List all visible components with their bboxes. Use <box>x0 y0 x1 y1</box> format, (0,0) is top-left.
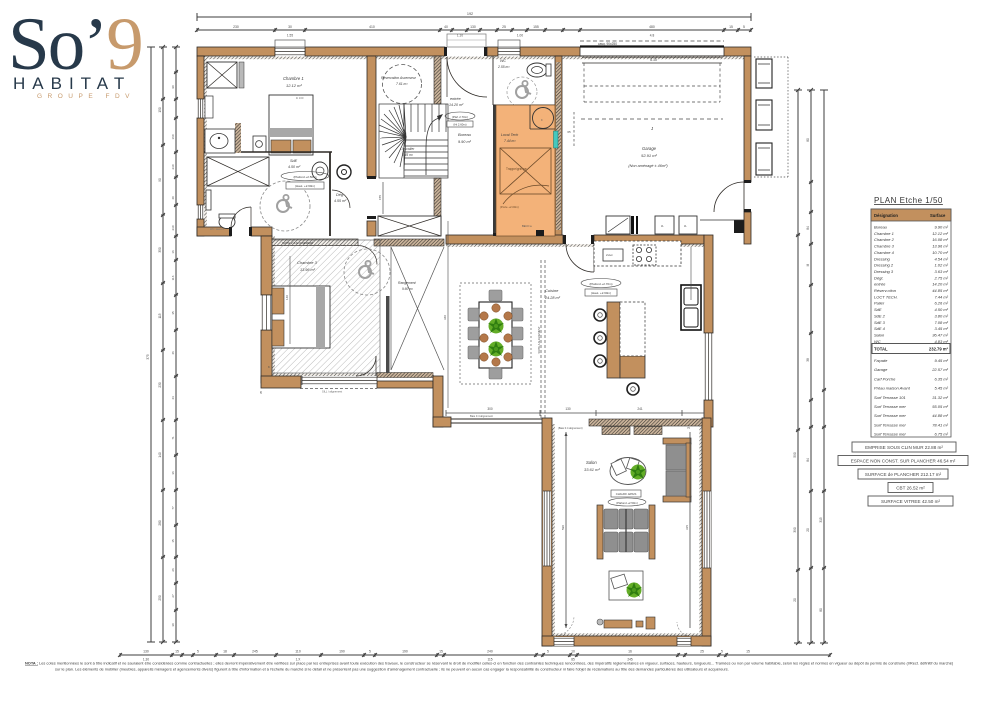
svg-text:20: 20 <box>793 598 797 602</box>
svg-text:350: 350 <box>158 247 162 253</box>
svg-text:130: 130 <box>470 25 476 29</box>
svg-text:c: c <box>541 117 543 122</box>
svg-text:K: K <box>268 365 270 369</box>
svg-text:590: 590 <box>793 452 797 458</box>
svg-text:Dressing: Dressing <box>874 256 891 261</box>
svg-text:90: 90 <box>158 178 162 182</box>
svg-text:4.54 m²: 4.54 m² <box>934 256 948 261</box>
svg-text:Salon: Salon <box>874 332 885 337</box>
svg-text:155: 155 <box>533 25 539 29</box>
svg-text:10.70 m²: 10.70 m² <box>932 250 948 255</box>
svg-text:Carf Porche: Carf Porche <box>874 376 896 381</box>
svg-text:HABITAT: HABITAT <box>13 74 131 93</box>
svg-text:TOTAL: TOTAL <box>874 347 888 352</box>
svg-text:15: 15 <box>729 25 733 29</box>
svg-text:250: 250 <box>158 595 162 601</box>
svg-text:9.90 m²: 9.90 m² <box>458 140 472 144</box>
svg-text:Chambre 3: Chambre 3 <box>874 244 895 249</box>
svg-text:5: 5 <box>547 650 549 654</box>
svg-text:5: 5 <box>721 650 723 654</box>
svg-text:230: 230 <box>233 25 239 29</box>
svg-text:Façade: Façade <box>874 358 888 363</box>
svg-text:150: 150 <box>158 107 162 113</box>
svg-text:7.08 m²: 7.08 m² <box>934 320 948 325</box>
svg-text:Dressing 3: Dressing 3 <box>874 269 894 274</box>
svg-text:SdE: SdE <box>290 159 298 163</box>
svg-text:190: 190 <box>402 650 408 654</box>
svg-text:Réserv.ction: Réserv.ction <box>874 288 897 293</box>
svg-text:Surf Terrasse 101: Surf Terrasse 101 <box>874 395 906 400</box>
svg-text:Surf Terrasse mer: Surf Terrasse mer <box>874 404 907 409</box>
svg-text:55.05 m²: 55.05 m² <box>932 404 948 409</box>
svg-text:13.96 m²: 13.96 m² <box>300 268 316 272</box>
svg-text:10: 10 <box>571 650 575 654</box>
svg-text:3.63 m²: 3.63 m² <box>934 269 948 274</box>
svg-text:115: 115 <box>158 313 162 318</box>
svg-text:6.35 m²: 6.35 m² <box>934 376 948 381</box>
svg-text:71: 71 <box>171 436 175 440</box>
svg-text:sur le plan. Les éléments de m: sur le plan. Les éléments de mobilier (m… <box>55 667 729 672</box>
svg-text:3.45 m²: 3.45 m² <box>934 326 948 331</box>
svg-text:Rangement: Rangement <box>398 281 417 285</box>
svg-text:entrée: entrée <box>874 282 886 287</box>
svg-text:SILL / alignement: SILL / alignement <box>322 390 342 394</box>
svg-text:24.28 m²: 24.28 m² <box>544 296 561 300</box>
svg-text:SdE 2: SdE 2 <box>874 313 886 318</box>
svg-text:40: 40 <box>171 196 175 200</box>
svg-text:46: 46 <box>171 351 175 355</box>
svg-text:52.91 m²: 52.91 m² <box>641 153 657 158</box>
svg-text:LOCT TECH.: LOCT TECH. <box>874 294 898 299</box>
svg-text:Garage: Garage <box>642 146 657 151</box>
svg-text:Réservation Ascenseur: Réservation Ascenseur <box>381 76 417 80</box>
svg-text:190: 190 <box>339 650 345 654</box>
svg-text:2.75 m²: 2.75 m² <box>933 275 948 280</box>
svg-text:241: 241 <box>637 407 643 411</box>
svg-text:3.80 m²: 3.80 m² <box>934 313 948 318</box>
svg-text:WC: WC <box>500 59 506 63</box>
svg-text:160: 160 <box>171 134 175 139</box>
svg-text:36: 36 <box>171 471 175 475</box>
svg-text:116: 116 <box>171 275 175 280</box>
svg-text:(Plafond +2.70m): (Plafond +2.70m) <box>589 282 612 286</box>
svg-text:4.55 m²: 4.55 m² <box>334 199 347 203</box>
svg-text:77: 77 <box>171 506 175 510</box>
svg-text:1.00: 1.00 <box>517 34 523 38</box>
svg-text:a.: a. <box>661 223 664 228</box>
svg-text:5: 5 <box>197 650 199 654</box>
svg-text:Surf Terrasse mer: Surf Terrasse mer <box>874 422 907 427</box>
svg-text:Désignation: Désignation <box>874 213 898 218</box>
svg-text:315: 315 <box>819 517 823 523</box>
svg-text:230: 230 <box>158 382 162 388</box>
svg-text:232.79 m²: 232.79 m² <box>929 347 949 352</box>
svg-text:Trappe/grimpe: Trappe/grimpe <box>506 167 527 171</box>
svg-text:12.12 m²: 12.12 m² <box>286 83 302 88</box>
svg-text:2.55 m²: 2.55 m² <box>497 65 510 69</box>
svg-text:Chambre 4: Chambre 4 <box>874 250 895 255</box>
svg-text:27: 27 <box>171 594 175 598</box>
svg-text:(Ht 2.60m): (Ht 2.60m) <box>453 123 466 127</box>
svg-text:EMPRISE SOUS CLIN MUR 22.88 m: EMPRISE SOUS CLIN MUR 22.88 m² <box>865 445 943 450</box>
svg-text:J: J <box>651 126 653 131</box>
svg-text:22.57 m²: 22.57 m² <box>931 367 948 372</box>
svg-text:Garage: Garage <box>874 367 888 372</box>
svg-text:110: 110 <box>295 650 301 654</box>
svg-text:140: 140 <box>158 452 162 458</box>
svg-text:30: 30 <box>288 25 292 29</box>
svg-text:375: 375 <box>146 354 150 360</box>
svg-text:340: 340 <box>443 315 447 320</box>
svg-text:Surface: Surface <box>930 213 946 218</box>
svg-text:16.08 m²: 16.08 m² <box>932 237 948 242</box>
svg-text:Dressing 2: Dressing 2 <box>874 263 894 268</box>
svg-text:44.88 m²: 44.88 m² <box>932 413 948 418</box>
svg-text:CBT 26.52 m²: CBT 26.52 m² <box>896 486 925 491</box>
svg-text:44: 44 <box>171 396 175 400</box>
svg-text:9.60 m²: 9.60 m² <box>402 287 414 291</box>
svg-text:15: 15 <box>171 539 175 543</box>
svg-text:35: 35 <box>259 390 263 394</box>
svg-text:590: 590 <box>561 525 565 530</box>
svg-text:1.10: 1.10 <box>457 34 463 38</box>
svg-text:15: 15 <box>439 650 443 654</box>
svg-text:WC: lave-m.: WC: lave-m. <box>210 227 225 231</box>
svg-text:Dégt.: Dégt. <box>874 275 884 280</box>
svg-text:WC: WC <box>874 339 881 344</box>
svg-text:9.45 m²: 9.45 m² <box>934 358 948 363</box>
svg-text:16: 16 <box>628 650 632 654</box>
svg-text:(Porte +2.00m): (Porte +2.00m) <box>500 205 519 209</box>
svg-text:9.90 m²: 9.90 m² <box>934 225 948 230</box>
svg-text:Chambre 2: Chambre 2 <box>874 237 895 242</box>
svg-text:Chambre 1: Chambre 1 <box>874 231 894 236</box>
svg-text:entrée: entrée <box>450 97 461 101</box>
svg-text:CHAUFF. EPAIS: CHAUFF. EPAIS <box>616 492 637 496</box>
svg-text:13.96 m²: 13.96 m² <box>932 244 948 249</box>
svg-text:15: 15 <box>175 650 179 654</box>
svg-text:NOTA : Les cotes mentionnées l: NOTA : Les cotes mentionnées le sont à t… <box>25 661 954 666</box>
svg-text:évier: évier <box>606 253 614 257</box>
svg-text:(Non aménagé ± 46m²): (Non aménagé ± 46m²) <box>628 164 668 168</box>
svg-text:1.02 m²: 1.02 m² <box>934 263 948 268</box>
svg-text:4.50 m²: 4.50 m² <box>934 307 948 312</box>
svg-text:25: 25 <box>700 650 704 654</box>
svg-text:230: 230 <box>171 225 175 230</box>
svg-text:casq. 90x250: casq. 90x250 <box>598 42 617 46</box>
svg-text:36.47 m²: 36.47 m² <box>932 332 948 337</box>
svg-text:26: 26 <box>171 568 175 572</box>
svg-text:78.41 m²: 78.41 m² <box>932 422 948 427</box>
svg-text:GROUPE FDV: GROUPE FDV <box>37 93 135 100</box>
svg-text:80: 80 <box>806 138 810 142</box>
svg-text:lit 160: lit 160 <box>296 96 304 100</box>
svg-text:7.61 m²: 7.61 m² <box>396 82 408 86</box>
svg-text:390: 390 <box>793 527 797 533</box>
svg-text:80: 80 <box>819 608 823 612</box>
svg-text:90: 90 <box>171 85 175 89</box>
svg-text:SdE 3: SdE 3 <box>874 320 886 325</box>
svg-text:Salon: Salon <box>586 460 597 465</box>
svg-text:1.55: 1.55 <box>287 34 293 38</box>
svg-text:6.26 m²: 6.26 m² <box>934 301 948 306</box>
svg-text:5: 5 <box>369 650 371 654</box>
svg-text:a.: a. <box>684 223 687 228</box>
svg-text:5.10: 5.10 <box>650 58 657 62</box>
svg-text:4.8: 4.8 <box>650 34 655 38</box>
svg-text:65: 65 <box>567 130 571 134</box>
svg-text:31.32 m²: 31.32 m² <box>932 395 948 400</box>
svg-text:480: 480 <box>649 25 655 29</box>
svg-text:SUITE A ALIGNEMENT: SUITE A ALIGNEMENT <box>537 326 541 354</box>
svg-text:SUITE 2 A ALIGNEMENT: SUITE 2 A ALIGNEMENT <box>282 241 314 245</box>
svg-text:84: 84 <box>806 226 810 230</box>
svg-text:44.85 m²: 44.85 m² <box>932 288 948 293</box>
svg-text:280: 280 <box>158 520 162 526</box>
svg-text:7.44 m²: 7.44 m² <box>504 139 516 143</box>
svg-text:33.61 m²: 33.61 m² <box>584 467 600 472</box>
svg-text:140: 140 <box>285 295 289 300</box>
svg-text:Chambre 3: Chambre 3 <box>297 260 318 265</box>
svg-text:14.20 m²: 14.20 m² <box>449 103 464 107</box>
svg-text:130: 130 <box>143 650 149 654</box>
svg-text:SdE 4: SdE 4 <box>874 326 886 331</box>
svg-text:(Plaf. 2.70m): (Plaf. 2.70m) <box>452 115 468 119</box>
svg-text:6.75 m²: 6.75 m² <box>934 432 948 437</box>
svg-text:12.12 m²: 12.12 m² <box>932 231 948 236</box>
svg-text:(Haut. +2.60m): (Haut. +2.60m) <box>591 291 611 295</box>
svg-text:PLAN Etche 1/50: PLAN Etche 1/50 <box>874 196 943 205</box>
svg-text:Préau maison Avant: Préau maison Avant <box>874 386 911 391</box>
svg-text:15: 15 <box>746 650 750 654</box>
svg-text:155: 155 <box>378 195 382 200</box>
svg-text:130: 130 <box>565 407 571 411</box>
svg-text:4.83 m²: 4.83 m² <box>934 339 948 344</box>
svg-text:ESPACE NON CONST. SUR PLANCHER: ESPACE NON CONST. SUR PLANCHER 46.54 m² <box>851 459 956 464</box>
svg-text:18: 18 <box>223 650 227 654</box>
svg-text:SURFACE de PLANCHER 212.17 m²: SURFACE de PLANCHER 212.17 m² <box>865 472 942 477</box>
svg-text:5: 5 <box>743 25 745 29</box>
svg-text:SURFACE VITREE 42.50 m²: SURFACE VITREE 42.50 m² <box>881 499 940 504</box>
svg-text:315: 315 <box>685 525 689 530</box>
svg-text:300: 300 <box>487 407 493 411</box>
svg-text:40: 40 <box>444 25 448 29</box>
svg-text:84: 84 <box>806 458 810 462</box>
svg-text:20: 20 <box>806 528 810 532</box>
svg-text:Cuisine: Cuisine <box>545 288 559 293</box>
svg-text:38: 38 <box>806 358 810 362</box>
svg-text:(Haut. +2.60m): (Haut. +2.60m) <box>295 184 315 188</box>
svg-text:Bureau: Bureau <box>874 225 888 230</box>
svg-text:25: 25 <box>502 25 506 29</box>
svg-text:Palier: Palier <box>874 301 885 306</box>
svg-text:4.50 m²: 4.50 m² <box>288 165 301 169</box>
svg-text:30: 30 <box>171 623 175 627</box>
svg-text:2.45 m²: 2.45 m² <box>401 153 414 157</box>
svg-text:16: 16 <box>171 250 175 254</box>
svg-text:35: 35 <box>171 311 175 315</box>
svg-text:245: 245 <box>252 650 258 654</box>
svg-text:240: 240 <box>487 650 493 654</box>
svg-text:Baie 0.4 alignement: Baie 0.4 alignement <box>470 414 493 418</box>
svg-text:192: 192 <box>467 12 473 16</box>
svg-text:410: 410 <box>369 25 375 29</box>
svg-text:SdE: SdE <box>874 307 882 312</box>
svg-text:Local Tech: Local Tech <box>501 133 518 137</box>
svg-text:(Plafond +2.50m): (Plafond +2.50m) <box>616 501 638 505</box>
svg-text:Surf Terrasse mer: Surf Terrasse mer <box>874 432 907 437</box>
svg-text:230: 230 <box>171 164 175 169</box>
svg-text:Surf Terrasse mer: Surf Terrasse mer <box>874 413 907 418</box>
svg-text:14.20 m²: 14.20 m² <box>932 282 948 287</box>
svg-text:BECO a: BECO a <box>522 224 532 228</box>
svg-text:(Baie 0.4 alignement): (Baie 0.4 alignement) <box>558 426 583 430</box>
svg-text:7.44 m²: 7.44 m² <box>934 294 948 299</box>
svg-text:L'escalier: L'escalier <box>400 147 415 151</box>
svg-text:Chambre 1: Chambre 1 <box>283 76 304 81</box>
svg-text:(Plafond +2.50m): (Plafond +2.50m) <box>293 175 316 179</box>
svg-text:M: M <box>806 263 810 266</box>
svg-text:5.45 m²: 5.45 m² <box>934 386 948 391</box>
svg-text:Bureau: Bureau <box>458 132 472 137</box>
